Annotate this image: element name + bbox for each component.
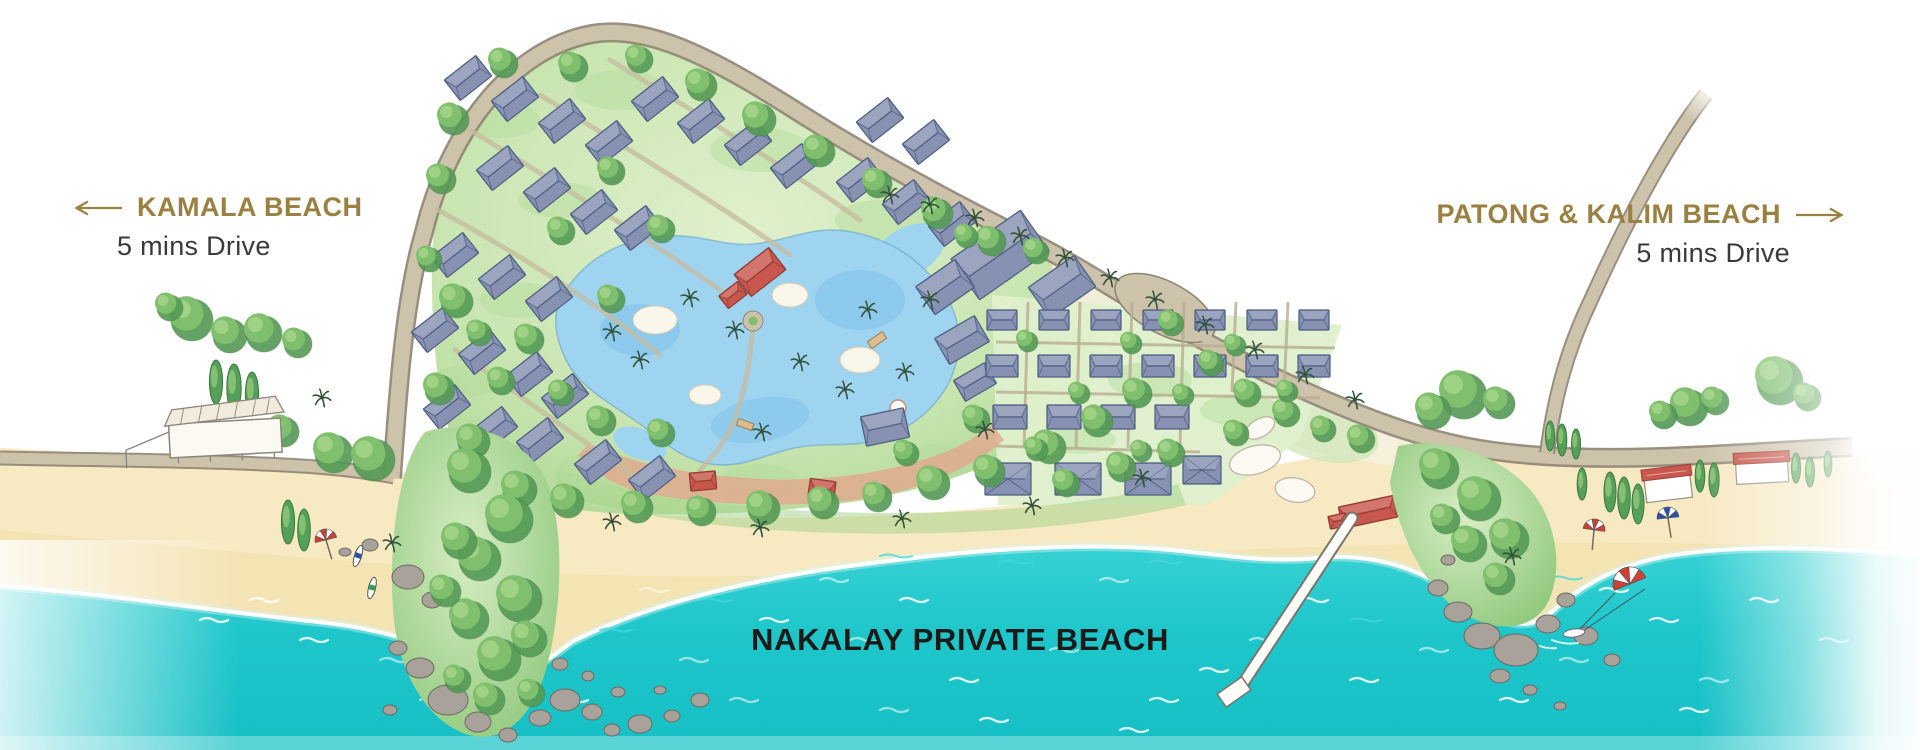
cypress-tree — [298, 509, 311, 551]
villa-roof — [1183, 456, 1221, 484]
villa-roof — [1247, 310, 1277, 330]
rock — [406, 658, 434, 678]
villa-roof — [1091, 310, 1121, 330]
rock — [1523, 685, 1537, 695]
rock — [628, 715, 652, 733]
villa-roof — [1142, 355, 1174, 377]
rock — [392, 565, 424, 589]
villa-roof — [1299, 310, 1329, 330]
villa-roof — [1039, 310, 1069, 330]
rock — [499, 728, 517, 742]
rock — [529, 710, 551, 726]
left-arrow-icon — [72, 198, 124, 218]
rock — [550, 689, 580, 711]
cypress-tree — [1572, 429, 1581, 459]
cypress-tree — [281, 500, 294, 544]
rock — [582, 704, 602, 720]
rock — [1444, 602, 1472, 622]
patong-kalim-label: PATONG & KALIM BEACH — [1437, 199, 1847, 230]
resort-map: KAMALA BEACH 5 mins Drive PATONG & KALIM… — [0, 0, 1920, 750]
villa-roof — [1090, 355, 1122, 377]
rock — [611, 687, 625, 697]
right-arrow-icon — [1794, 205, 1846, 225]
cypress-tree — [1577, 468, 1587, 500]
villa-roof — [1246, 355, 1278, 377]
beach-building — [1641, 464, 1695, 503]
cypress-tree — [209, 360, 222, 404]
rock — [1557, 593, 1575, 607]
villa-roof — [987, 310, 1017, 330]
villa-roof — [1155, 405, 1189, 429]
villa-roof — [1195, 310, 1225, 330]
rock — [1441, 555, 1455, 565]
rock — [362, 539, 378, 551]
patong-kalim-title: PATONG & KALIM BEACH — [1437, 199, 1782, 230]
kamala-beach-label: KAMALA BEACH — [72, 192, 362, 223]
cypress-tree — [1632, 484, 1644, 524]
villa-roof — [986, 355, 1018, 377]
cypress-tree — [1557, 424, 1567, 456]
cypress-tree — [1546, 421, 1555, 451]
villa-roof — [1047, 405, 1081, 429]
rock — [383, 705, 397, 715]
rock — [339, 548, 351, 556]
kamala-beach-title: KAMALA BEACH — [137, 192, 362, 223]
rock — [1490, 669, 1510, 683]
rock — [1554, 702, 1566, 710]
rock — [664, 710, 680, 722]
rock — [1428, 580, 1448, 596]
cypress-tree — [1604, 472, 1616, 512]
kamala-drive-time: 5 mins Drive — [117, 231, 271, 262]
rock — [582, 671, 594, 681]
rock — [691, 693, 709, 707]
rock — [552, 658, 568, 670]
cypress-tree — [1618, 477, 1631, 519]
nakalay-beach-label: NAKALAY PRIVATE BEACH — [0, 622, 1920, 658]
villa-roof — [993, 405, 1027, 429]
rock — [654, 686, 666, 694]
rock — [604, 724, 620, 736]
patong-drive-time: 5 mins Drive — [1636, 238, 1790, 269]
red-roof-building — [689, 471, 716, 491]
villa-roof — [1038, 355, 1070, 377]
